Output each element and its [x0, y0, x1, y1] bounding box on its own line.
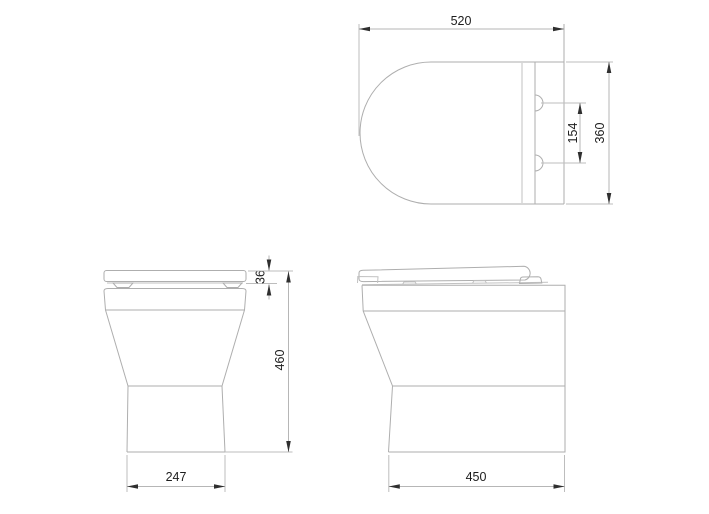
- technical-drawing-canvas: 520 154 360 36: [0, 0, 709, 514]
- dim-label-520: 520: [451, 14, 472, 28]
- dimension-247: 247: [127, 455, 225, 492]
- side-view: 450: [358, 266, 566, 492]
- dimension-450: 450: [389, 455, 565, 492]
- front-lid: [104, 271, 246, 282]
- dim-label-247: 247: [166, 470, 187, 484]
- top-view-outline: [360, 62, 564, 204]
- front-hinge-tab-left: [113, 283, 133, 288]
- side-body-left-edge: [362, 285, 393, 452]
- technical-drawing-page: 520 154 360 36: [0, 0, 709, 514]
- front-bowl-left-side: [106, 310, 129, 452]
- dimension-36: 36: [246, 256, 277, 300]
- top-view: 520 154 360: [359, 14, 613, 204]
- front-view: 36 460 247: [104, 256, 293, 493]
- dim-label-460: 460: [273, 350, 287, 371]
- dimension-460: 460: [225, 271, 293, 452]
- dim-label-36: 36: [254, 270, 268, 284]
- front-bowl-rim: [104, 289, 246, 311]
- dim-label-450: 450: [466, 470, 487, 484]
- front-bowl-right-side: [222, 310, 245, 452]
- side-body-outline: [362, 285, 565, 452]
- dim-label-360: 360: [593, 123, 607, 144]
- side-lid: [359, 266, 530, 281]
- front-hinge-tab-right: [223, 283, 242, 288]
- dim-label-154: 154: [566, 123, 580, 144]
